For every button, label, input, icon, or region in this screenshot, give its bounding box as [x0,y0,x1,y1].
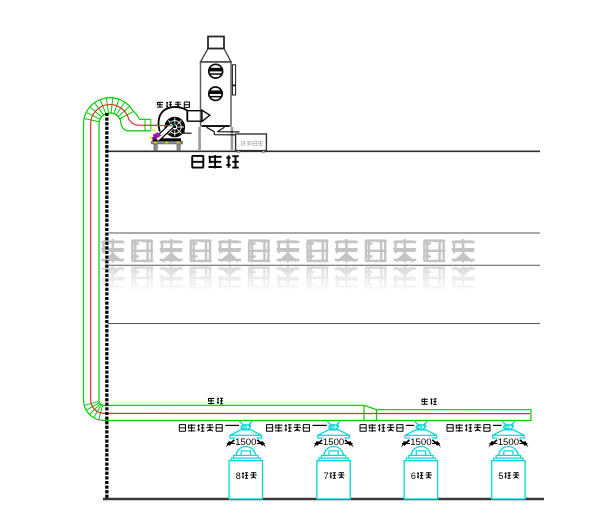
svg-text:7: 7 [324,471,329,481]
svg-text:8: 8 [236,471,241,481]
svg-text:5: 5 [498,471,503,481]
svg-text:6: 6 [411,471,416,481]
